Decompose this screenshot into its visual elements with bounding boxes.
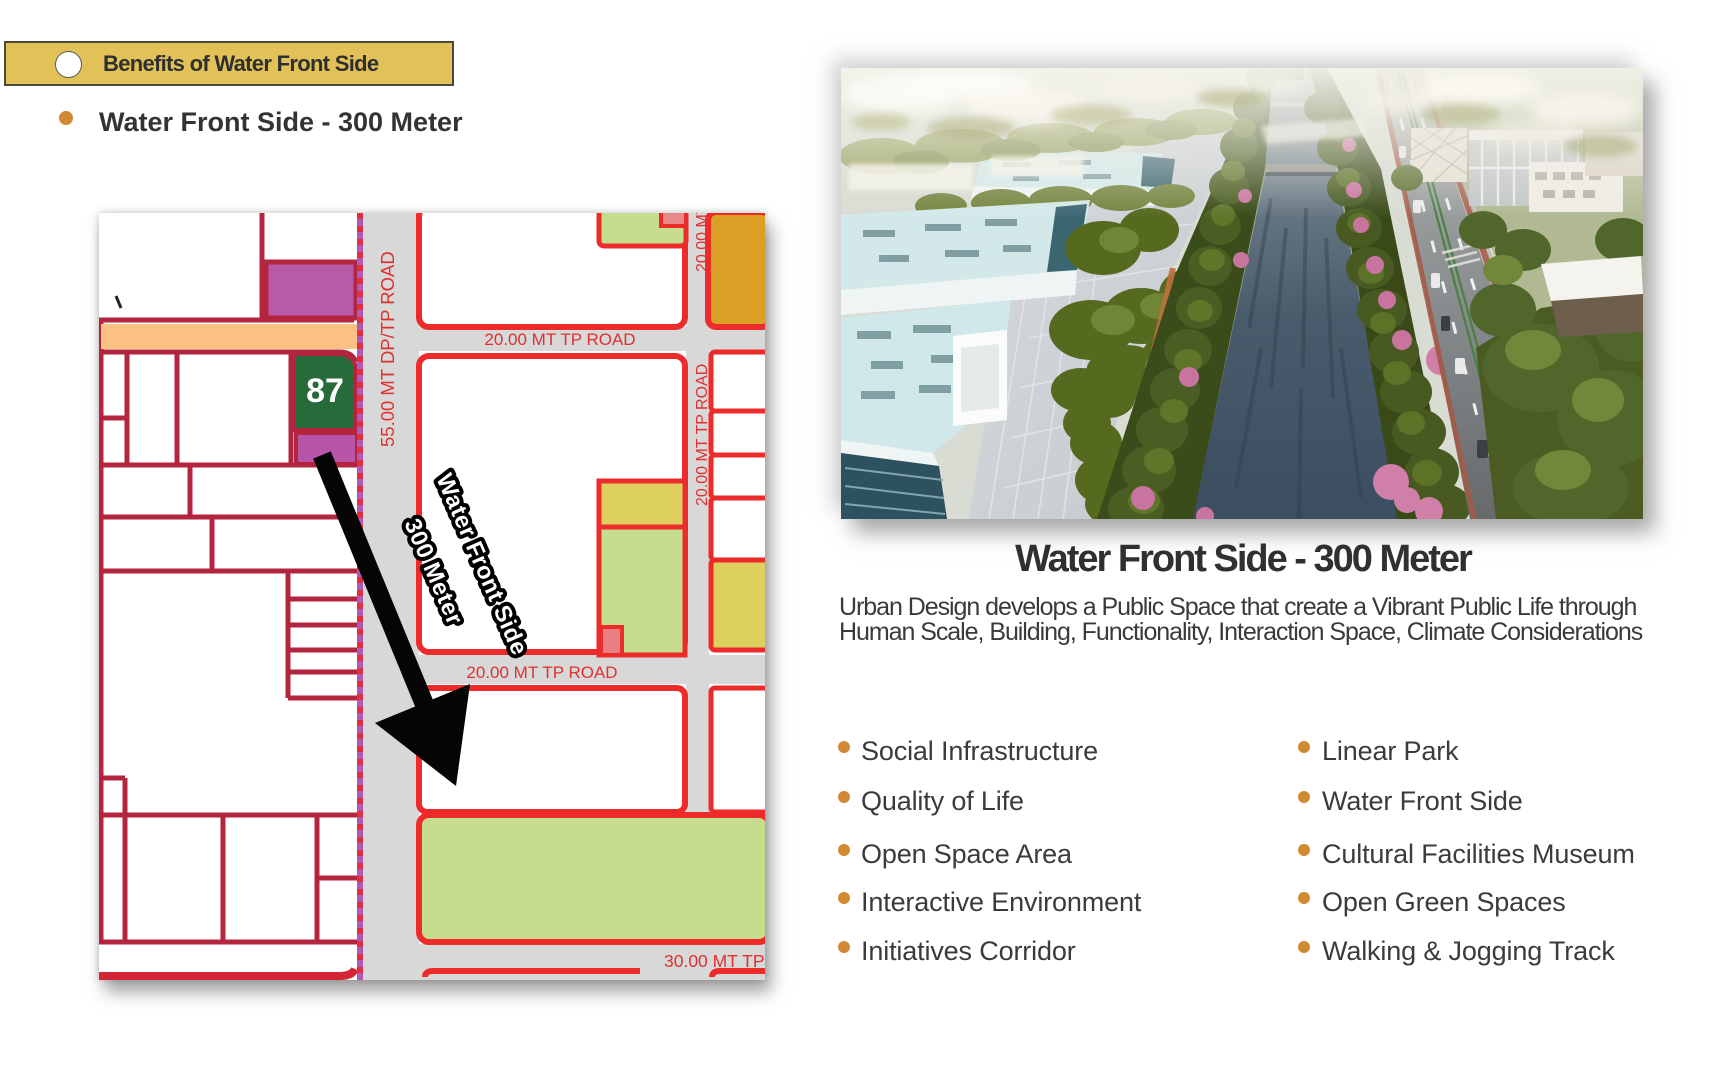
svg-text:55.00 MT DP/TP ROAD: 55.00 MT DP/TP ROAD: [377, 251, 398, 447]
svg-text:20.00 MT TP ROAD: 20.00 MT TP ROAD: [694, 364, 711, 506]
svg-text:20.00 MT TP ROAD: 20.00 MT TP ROAD: [484, 330, 635, 349]
svg-text:20.00 MT TP ROAD: 20.00 MT TP ROAD: [694, 213, 711, 272]
svg-text:30.00 MT TP: 30.00 MT TP: [664, 951, 765, 971]
svg-text:20.00 MT TP ROAD: 20.00 MT TP ROAD: [466, 663, 617, 682]
svg-text:87: 87: [306, 372, 344, 410]
